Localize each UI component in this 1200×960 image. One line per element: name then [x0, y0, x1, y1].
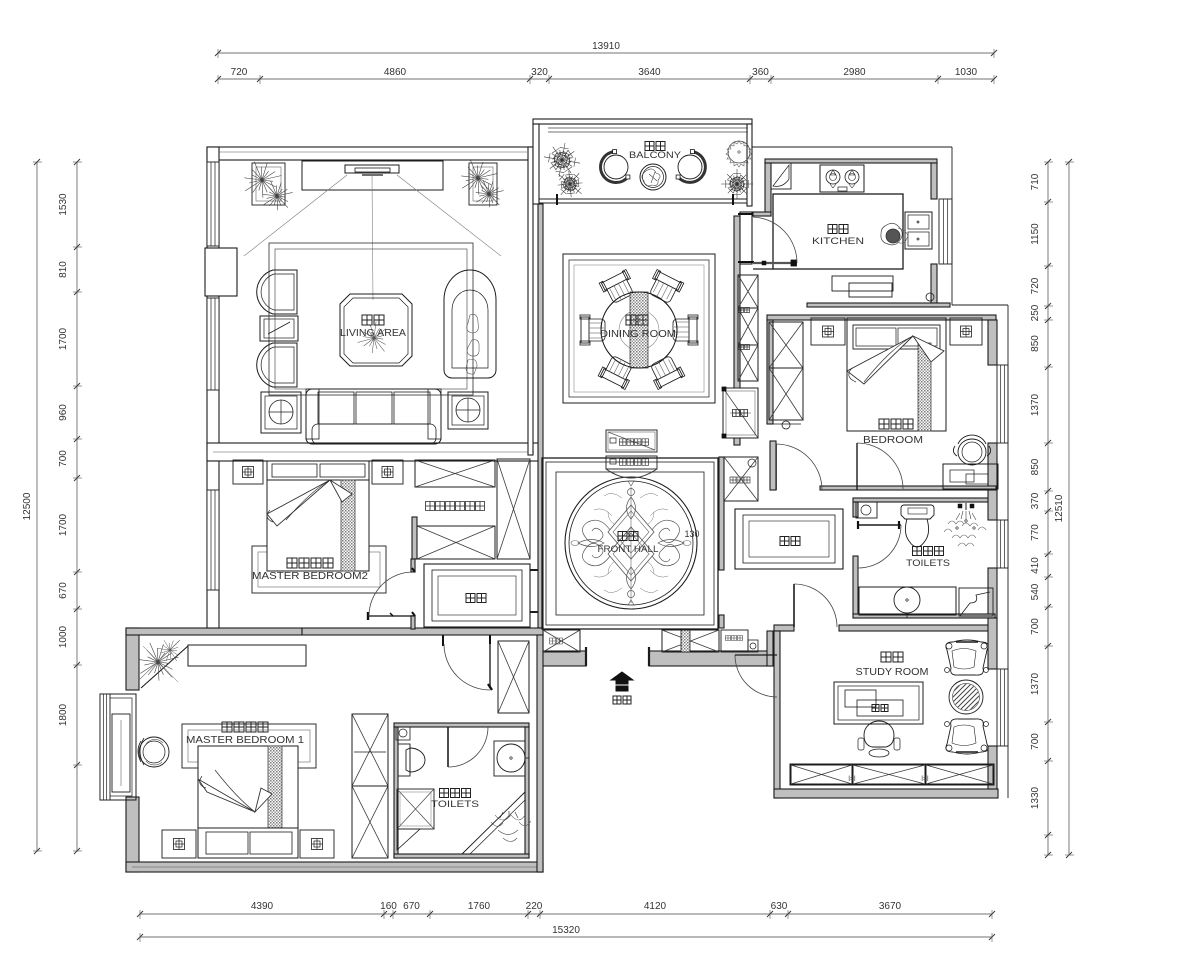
svg-text:TOILETS: TOILETS [431, 799, 479, 810]
svg-text:1330: 1330 [1030, 786, 1041, 809]
svg-text:1800: 1800 [58, 703, 69, 726]
svg-text:STUDY ROOM: STUDY ROOM [856, 666, 929, 678]
svg-text:l=l: l=l [848, 776, 856, 783]
svg-text:1760: 1760 [468, 901, 491, 912]
svg-text:l=l: l=l [921, 776, 929, 783]
svg-text:1700: 1700 [58, 327, 69, 350]
svg-text:1030: 1030 [955, 67, 978, 78]
svg-text:630: 630 [771, 901, 788, 912]
svg-text:DINING ROOM: DINING ROOM [600, 329, 676, 340]
svg-text:250: 250 [1030, 304, 1041, 321]
svg-text:810: 810 [58, 261, 69, 278]
svg-text:BALCONY: BALCONY [629, 150, 682, 161]
svg-text:670: 670 [58, 582, 69, 599]
svg-text:1700: 1700 [58, 513, 69, 536]
svg-text:12510: 12510 [1054, 494, 1065, 522]
svg-text:4390: 4390 [251, 901, 274, 912]
svg-text:360: 360 [752, 67, 769, 78]
svg-text:710: 710 [1030, 173, 1041, 190]
svg-text:700: 700 [58, 450, 69, 467]
svg-text:770: 770 [1030, 524, 1041, 541]
svg-text:MASTER BEDROOM 1: MASTER BEDROOM 1 [186, 734, 304, 746]
svg-text:4860: 4860 [384, 67, 407, 78]
svg-text:13910: 13910 [592, 41, 620, 52]
svg-text:1000: 1000 [58, 625, 69, 648]
svg-text:700: 700 [1030, 618, 1041, 635]
svg-text:TOILETS: TOILETS [906, 558, 950, 569]
svg-text:MASTER BEDROOM2: MASTER BEDROOM2 [252, 570, 368, 582]
svg-text:1370: 1370 [1030, 393, 1041, 416]
svg-text:850: 850 [1030, 335, 1041, 352]
svg-text:1370: 1370 [1030, 672, 1041, 695]
svg-text:220: 220 [526, 901, 543, 912]
svg-text:410: 410 [1030, 557, 1041, 574]
svg-text:KITCHEN: KITCHEN [812, 236, 864, 247]
svg-text:700: 700 [1030, 733, 1041, 750]
svg-text:370: 370 [1030, 492, 1041, 509]
svg-text:160: 160 [380, 901, 397, 912]
svg-text:4120: 4120 [644, 901, 667, 912]
svg-text:BEDROOM: BEDROOM [863, 435, 923, 446]
svg-text:2980: 2980 [843, 67, 866, 78]
svg-text:320: 320 [531, 67, 548, 78]
svg-text:130: 130 [684, 529, 699, 539]
svg-text:720: 720 [231, 67, 248, 78]
svg-text:960: 960 [58, 404, 69, 421]
svg-text:15320: 15320 [552, 925, 580, 936]
svg-text:FRONT HALL: FRONT HALL [598, 544, 659, 555]
svg-text:3670: 3670 [879, 901, 902, 912]
svg-text:850: 850 [1030, 458, 1041, 475]
svg-text:670: 670 [403, 901, 420, 912]
svg-text:3640: 3640 [638, 67, 661, 78]
svg-text:12500: 12500 [22, 492, 33, 520]
svg-text:1530: 1530 [58, 193, 69, 216]
svg-text:1150: 1150 [1030, 223, 1041, 245]
svg-text:720: 720 [1030, 277, 1041, 294]
svg-text:540: 540 [1030, 583, 1041, 600]
